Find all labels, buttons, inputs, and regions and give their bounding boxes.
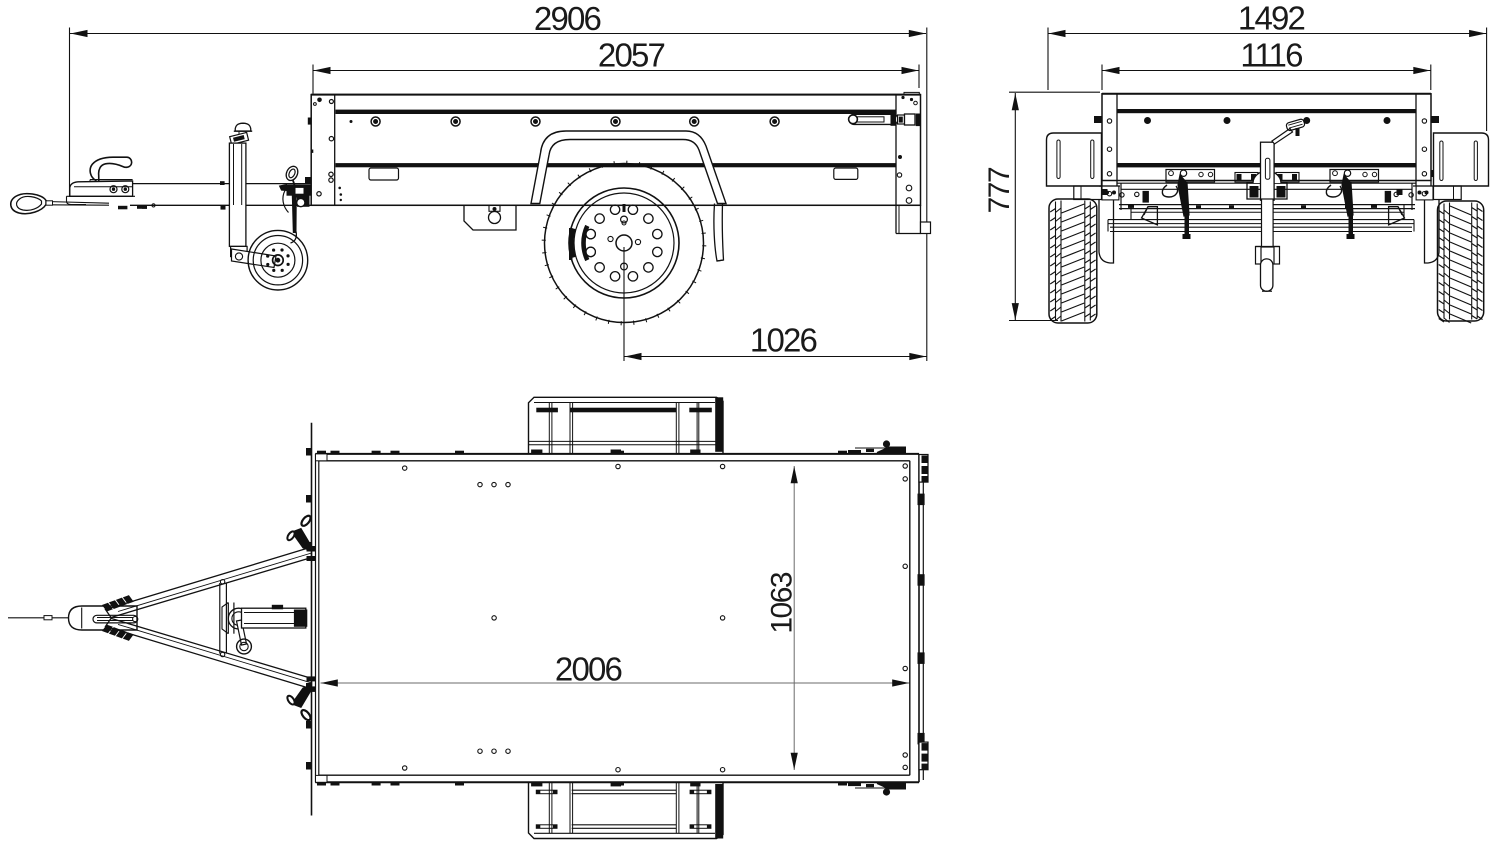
- svg-text:2906: 2906: [534, 0, 601, 37]
- svg-text:2057: 2057: [598, 37, 665, 74]
- svg-text:1026: 1026: [750, 322, 817, 359]
- svg-text:1116: 1116: [1240, 37, 1302, 74]
- svg-text:1492: 1492: [1238, 0, 1305, 37]
- svg-text:777: 777: [983, 167, 1016, 213]
- svg-text:2006: 2006: [555, 651, 622, 688]
- svg-text:1063: 1063: [766, 572, 799, 634]
